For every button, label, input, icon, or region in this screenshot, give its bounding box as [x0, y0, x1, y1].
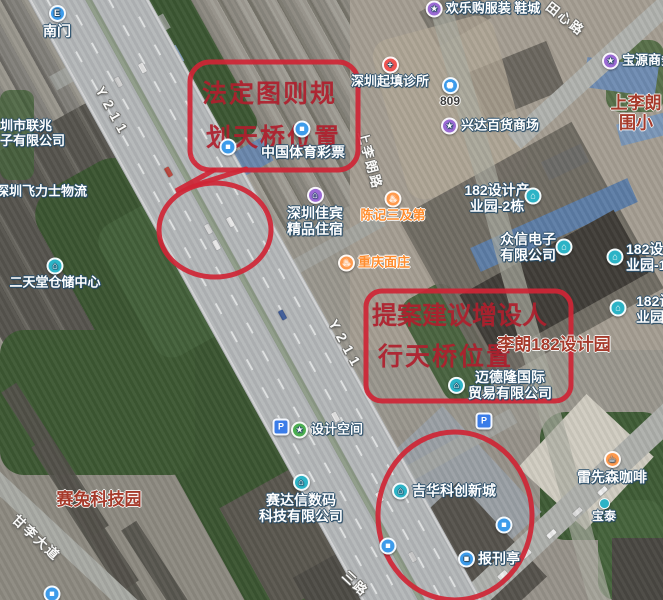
hospital-icon[interactable]: + — [381, 57, 398, 74]
poi-label: 赛达信数码科技有限公司 — [259, 492, 343, 524]
metro-entrance-nanmen[interactable]: E南门 — [43, 5, 71, 39]
poi-label: 雷先森咖啡 — [577, 469, 647, 485]
poi-label: 中国体育彩票 — [261, 144, 345, 160]
jiabin-boutique-hotel[interactable]: ⌂深圳佳宾精品住宿 — [287, 187, 343, 237]
poi-label: 宝源商务 — [622, 54, 663, 69]
bus-icon[interactable]: ■ — [442, 77, 459, 94]
bus-icon[interactable]: ■ — [496, 517, 513, 534]
poi-label: 赛兔科技园 — [57, 490, 142, 510]
poi-layer: E南门★欢乐购服装 鞋城+深圳起填诊所★宝源商务■809★兴达百货商场上李朗围小… — [0, 0, 663, 600]
bus-icon-corner[interactable]: ■ — [44, 586, 61, 600]
lianzhao-electronics-label[interactable]: 圳市联兆子有限公司 — [0, 119, 65, 149]
building-icon[interactable]: ⌂ — [610, 300, 627, 317]
bus-icon[interactable]: ■ — [294, 121, 311, 138]
shenzhen-qitian-clinic[interactable]: +深圳起填诊所 — [351, 57, 429, 90]
building-icon[interactable]: ⌂ — [392, 483, 409, 500]
poi-label: 南门 — [43, 23, 71, 39]
building-icon[interactable]: ⌂ — [448, 377, 465, 394]
shanglilang-wei-area-label[interactable]: 上李朗围小 — [611, 93, 662, 132]
poi-label: 182设业园-1 — [626, 241, 663, 273]
poi-label: 重庆面庄 — [358, 256, 410, 271]
chongqing-noodle-house[interactable]: ♨重庆面庄 — [338, 255, 410, 272]
park182-building2-icon-poi[interactable]: ⌂ — [525, 188, 542, 205]
park182-building1-icon-poi[interactable]: ⌂ — [607, 249, 624, 266]
design-icon[interactable]: ★ — [291, 422, 308, 439]
poi-label: 吉华科创新城 — [412, 483, 496, 499]
chenji-sanjidi-restaurant[interactable]: ♨陈记三及第 — [360, 191, 425, 224]
poi-label: 圳市联兆子有限公司 — [0, 119, 65, 149]
jihua-innovation-city[interactable]: ⌂吉华科创新城 — [392, 483, 496, 500]
poi-label: 宝泰 — [592, 510, 616, 524]
china-sports-lottery-label[interactable]: 中国体育彩票 — [261, 144, 345, 160]
huanlegou-clothing-shoe-city[interactable]: ★欢乐购服装 鞋城 — [426, 1, 541, 18]
poi-label: 兴达百货商场 — [461, 119, 539, 134]
building-icon[interactable]: ⌂ — [293, 474, 310, 491]
dot-icon[interactable] — [598, 498, 609, 509]
poi-label: 809 — [440, 95, 460, 109]
baotai-label[interactable]: 宝泰 — [592, 498, 616, 524]
parking-lot-a[interactable]: P — [476, 413, 493, 430]
poi-label: 深圳起填诊所 — [351, 75, 429, 90]
poi-label: 陈记三及第 — [360, 209, 425, 224]
poi-label: 二天堂仓储中心 — [9, 276, 100, 291]
bus-icon[interactable]: ■ — [380, 538, 397, 555]
shop-icon[interactable]: ★ — [426, 1, 443, 18]
kiosk-icon[interactable]: ■ — [458, 551, 475, 568]
lottery-stop-icon-a[interactable]: ■ — [220, 139, 237, 156]
leixiansen-coffee[interactable]: ☕雷先森咖啡 — [577, 451, 647, 485]
parking-icon[interactable]: P — [476, 413, 493, 430]
building-icon[interactable]: ⌂ — [46, 258, 63, 275]
poi-label: 182设计产业园-2栋 — [464, 182, 529, 214]
hotel-icon[interactable]: ⌂ — [307, 187, 324, 204]
newsstand[interactable]: ■报刊亭 — [458, 551, 520, 568]
xingda-department-store[interactable]: ★兴达百货商场 — [441, 118, 539, 135]
building-icon[interactable]: ⌂ — [607, 249, 624, 266]
poi-label: 深圳飞力士物流 — [0, 185, 87, 200]
building-icon[interactable]: ⌂ — [525, 188, 542, 205]
feilishi-logistics-label[interactable]: 深圳飞力士物流 — [0, 185, 87, 200]
lilang182-design-park-label[interactable]: 李朗182设计园 — [497, 335, 610, 355]
bus-icon[interactable]: ■ — [220, 139, 237, 156]
poi-label: 迈德隆国际贸易有限公司 — [468, 369, 552, 401]
zhongxin-electronics-label[interactable]: 众信电子有限公司 — [500, 231, 556, 263]
poi-label: 众信电子有限公司 — [500, 231, 556, 263]
poi-label: 欢乐购服装 鞋城 — [446, 2, 541, 17]
design-space[interactable]: ★设计空间 — [291, 422, 363, 439]
park182-buildingx-icon-poi[interactable]: ⌂ — [610, 300, 627, 317]
poi-label: 深圳佳宾精品住宿 — [287, 205, 343, 237]
food-icon[interactable]: ♨ — [384, 191, 401, 208]
baoyuan-business[interactable]: ★宝源商务 — [602, 53, 663, 70]
shop-icon[interactable]: ★ — [441, 118, 458, 135]
food-icon[interactable]: ♨ — [338, 255, 355, 272]
maidelong-international-trading[interactable]: ⌂迈德隆国际贸易有限公司 — [448, 369, 552, 401]
saitu-tech-park-label[interactable]: 赛兔科技园 — [57, 490, 142, 510]
ertiantang-warehouse-center[interactable]: ⌂二天堂仓储中心 — [9, 258, 100, 291]
parking-icon[interactable]: P — [273, 419, 290, 436]
parking-lot-b[interactable]: P — [273, 419, 290, 436]
saidaxin-digital-tech[interactable]: ⌂赛达信数码科技有限公司 — [259, 474, 343, 524]
satellite-map: Y211Y211上李朗路田心路甘李大道三路 法定图则规 划天桥位置 提案建议增设… — [0, 0, 663, 600]
poi-label: 上李朗围小 — [611, 93, 662, 132]
park182-buildingx-label[interactable]: 182设业园- — [636, 293, 663, 325]
building-icon[interactable]: ⌂ — [556, 239, 573, 256]
bus-icon-in-circle[interactable]: ■ — [496, 517, 513, 534]
shop-icon[interactable]: ★ — [602, 53, 619, 70]
metro-icon[interactable]: E — [49, 5, 66, 22]
park182-building2-label[interactable]: 182设计产业园-2栋 — [464, 182, 529, 214]
lottery-stop-icon-b[interactable]: ■ — [294, 121, 311, 138]
bus-icon[interactable]: ■ — [44, 586, 61, 600]
poi-label: 182设业园- — [636, 293, 663, 325]
bus-icon-southwest[interactable]: ■ — [380, 538, 397, 555]
coffee-icon[interactable]: ☕ — [604, 451, 621, 468]
poi-label: 李朗182设计园 — [497, 335, 610, 355]
poi-label: 报刊亭 — [478, 551, 520, 567]
poi-label: 设计空间 — [311, 423, 363, 438]
bus-stop-809[interactable]: ■809 — [440, 77, 460, 109]
zhongxin-electronics-icon-poi[interactable]: ⌂ — [556, 239, 573, 256]
park182-building1-label[interactable]: 182设业园-1 — [626, 241, 663, 273]
